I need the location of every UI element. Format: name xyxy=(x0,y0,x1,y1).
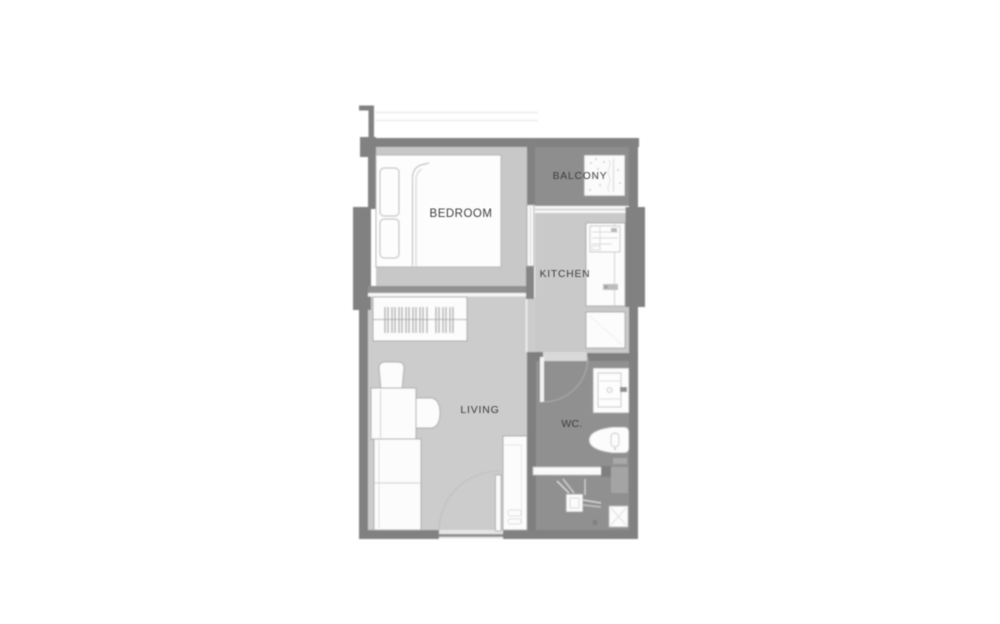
svg-text:BEDROOM: BEDROOM xyxy=(430,208,493,220)
svg-text:BALCONY: BALCONY xyxy=(553,171,608,182)
svg-text:WC.: WC. xyxy=(561,418,582,430)
svg-text:LIVING: LIVING xyxy=(460,404,499,416)
svg-text:KITCHEN: KITCHEN xyxy=(540,269,591,280)
